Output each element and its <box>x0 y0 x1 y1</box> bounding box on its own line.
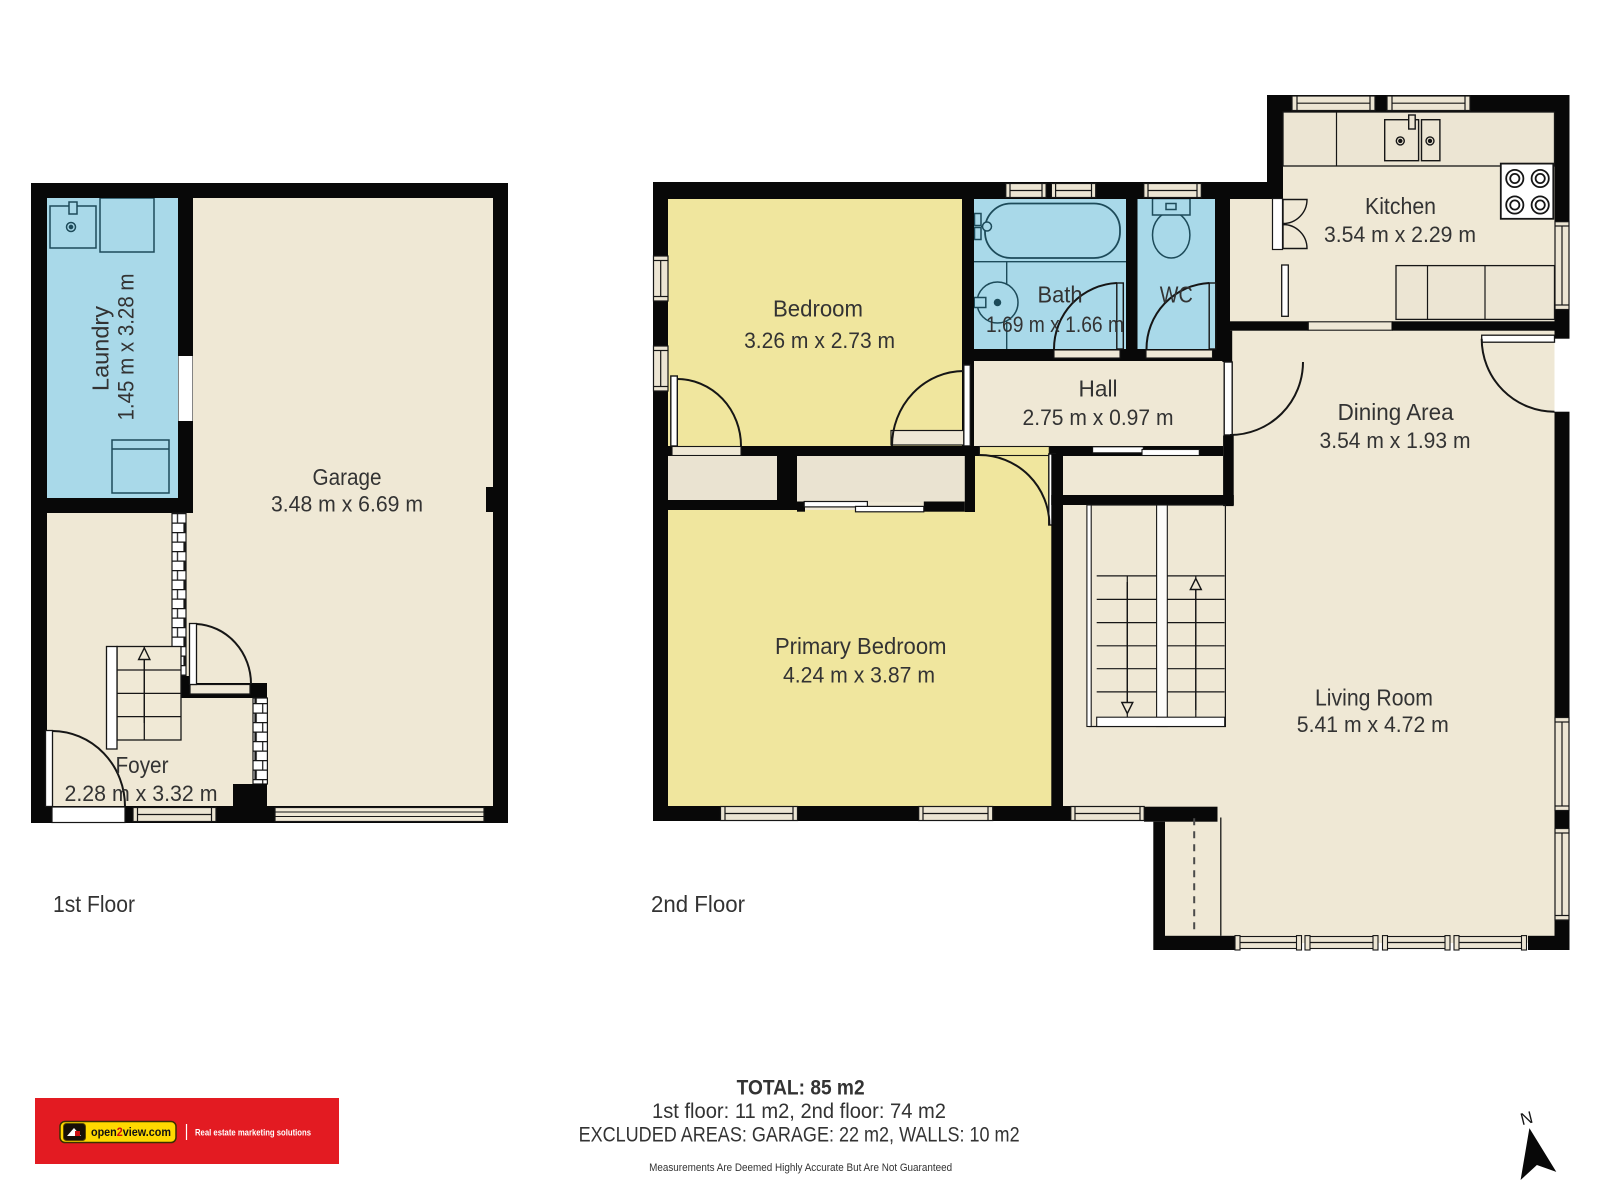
svg-text:Kitchen: Kitchen <box>1365 193 1436 219</box>
svg-text:Bedroom: Bedroom <box>773 295 863 321</box>
svg-text:Real estate marketing solution: Real estate marketing solutions <box>195 1128 311 1138</box>
svg-text:4.24 m x 3.87 m: 4.24 m x 3.87 m <box>783 663 935 688</box>
svg-text:Foyer: Foyer <box>116 752 169 778</box>
svg-text:Hall: Hall <box>1079 375 1118 401</box>
svg-text:Laundry: Laundry <box>88 306 114 391</box>
svg-text:1st floor: 11 m2, 2nd floor: 7: 1st floor: 11 m2, 2nd floor: 74 m2 <box>652 1100 946 1123</box>
svg-text:2.75 m x 0.97 m: 2.75 m x 0.97 m <box>1023 405 1174 430</box>
svg-text:EXCLUDED AREAS: GARAGE: 22 m2,: EXCLUDED AREAS: GARAGE: 22 m2, WALLS: 10… <box>579 1123 1020 1146</box>
svg-text:1.69 m x 1.66 m: 1.69 m x 1.66 m <box>986 312 1124 337</box>
svg-text:3.54 m x 1.93 m: 3.54 m x 1.93 m <box>1320 428 1471 453</box>
svg-text:Primary Bedroom: Primary Bedroom <box>775 633 947 659</box>
svg-text:3.54 m x 2.29 m: 3.54 m x 2.29 m <box>1324 222 1476 247</box>
svg-text:Measurements Are Deemed Highly: Measurements Are Deemed Highly Accurate … <box>649 1162 952 1174</box>
svg-text:Bath: Bath <box>1038 282 1083 308</box>
svg-text:WC: WC <box>1160 282 1193 308</box>
svg-text:1.45 m x 3.28 m: 1.45 m x 3.28 m <box>114 274 139 421</box>
svg-text:5.41 m x 4.72 m: 5.41 m x 4.72 m <box>1297 712 1449 737</box>
svg-text:Dining Area: Dining Area <box>1338 399 1455 425</box>
svg-text:2.28 m x 3.32 m: 2.28 m x 3.32 m <box>65 781 218 806</box>
svg-text:3.48 m x 6.69 m: 3.48 m x 6.69 m <box>271 492 423 517</box>
svg-text:3.26 m x 2.73 m: 3.26 m x 2.73 m <box>744 328 895 353</box>
svg-text:TOTAL: 85 m2: TOTAL: 85 m2 <box>737 1076 865 1099</box>
svg-text:1st Floor: 1st Floor <box>53 891 135 917</box>
svg-text:Garage: Garage <box>313 464 382 490</box>
svg-text:Living Room: Living Room <box>1315 685 1433 711</box>
svg-text:2nd Floor: 2nd Floor <box>651 891 745 917</box>
svg-text:open2view.com: open2view.com <box>91 1127 171 1139</box>
